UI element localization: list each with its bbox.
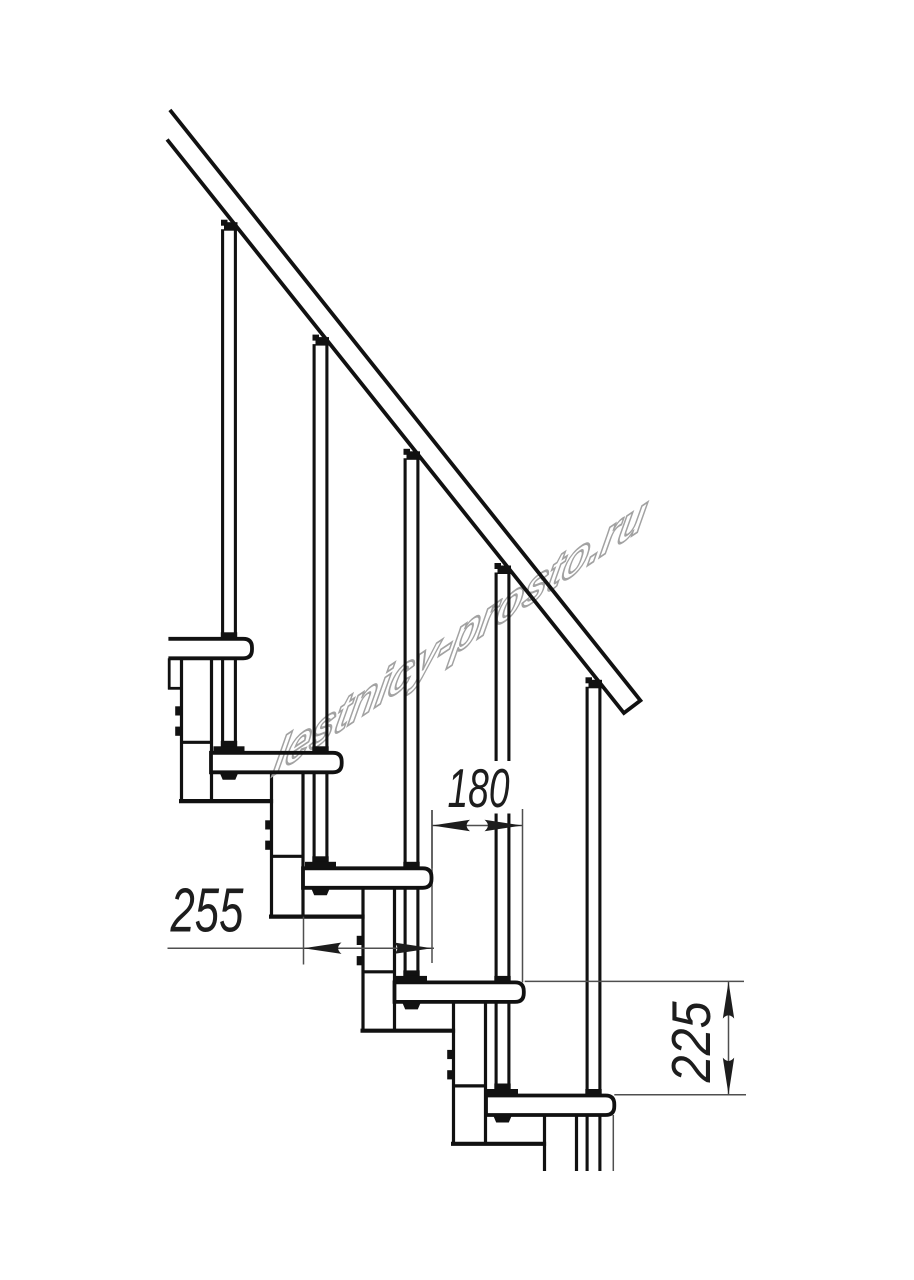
svg-text:180: 180 [448, 758, 510, 819]
svg-text:225: 225 [660, 1001, 721, 1083]
svg-text:255: 255 [170, 876, 244, 945]
